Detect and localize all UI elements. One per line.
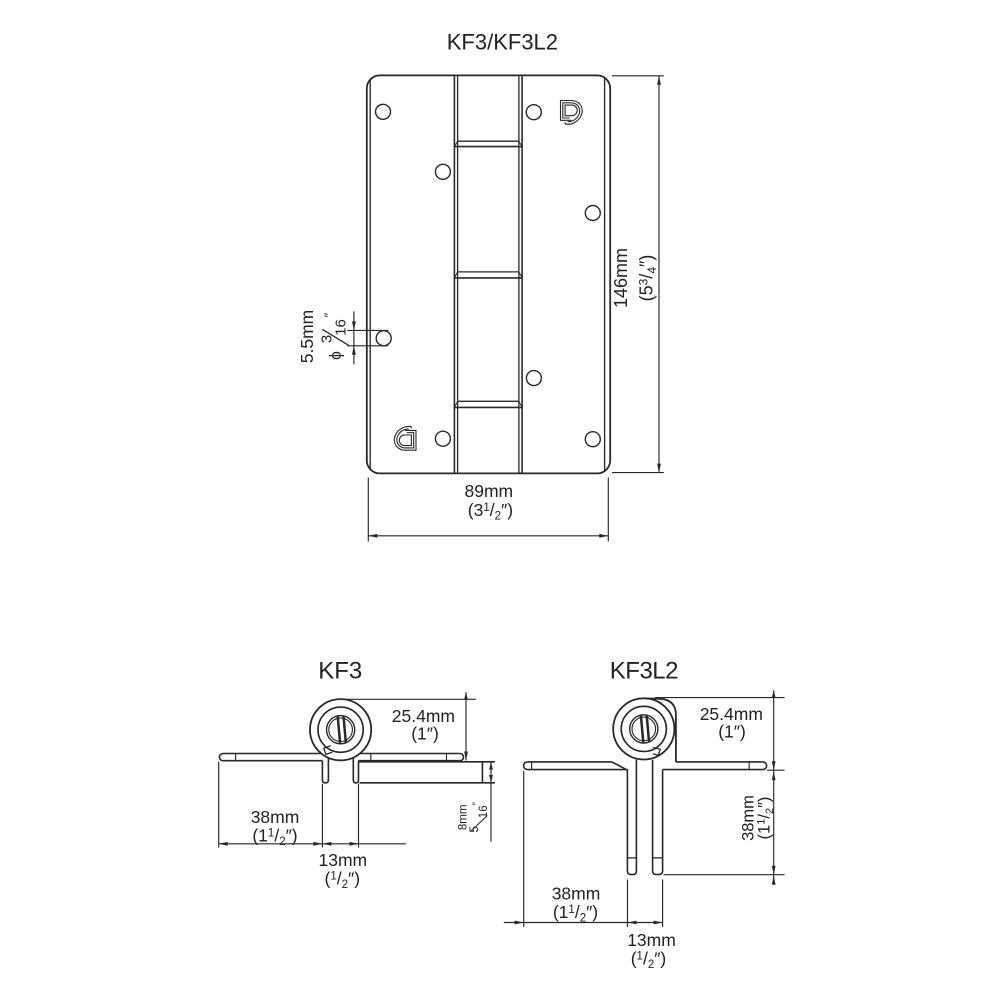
svg-text:38mm: 38mm xyxy=(251,807,300,827)
svg-text:38mm: 38mm xyxy=(552,884,601,904)
svg-text:16: 16 xyxy=(478,805,490,818)
svg-text:KF3/KF3L2: KF3/KF3L2 xyxy=(447,30,558,55)
svg-text:16: 16 xyxy=(333,319,350,336)
svg-text:(11/2″): (11/2″) xyxy=(252,826,297,849)
svg-text:146mm: 146mm xyxy=(611,248,631,308)
svg-text:″: ″ xyxy=(471,802,482,806)
svg-text:13mm: 13mm xyxy=(627,930,676,950)
svg-text:(11/2″): (11/2″) xyxy=(755,797,776,840)
svg-text:89mm: 89mm xyxy=(464,481,513,501)
svg-text:(1″): (1″) xyxy=(411,724,439,744)
svg-text:KF3: KF3 xyxy=(318,658,362,685)
svg-text:(31/2″): (31/2″) xyxy=(468,500,513,523)
svg-text:(11/2″): (11/2″) xyxy=(553,902,598,925)
svg-text:KF3L2: KF3L2 xyxy=(610,658,678,685)
svg-text:13mm: 13mm xyxy=(318,850,367,870)
svg-text:″: ″ xyxy=(322,312,337,317)
svg-text:(1″): (1″) xyxy=(718,722,746,742)
svg-text:ϕ: ϕ xyxy=(327,351,344,360)
svg-text:5.5mm: 5.5mm xyxy=(297,310,317,363)
svg-text:(53/4″): (53/4″) xyxy=(636,255,659,302)
